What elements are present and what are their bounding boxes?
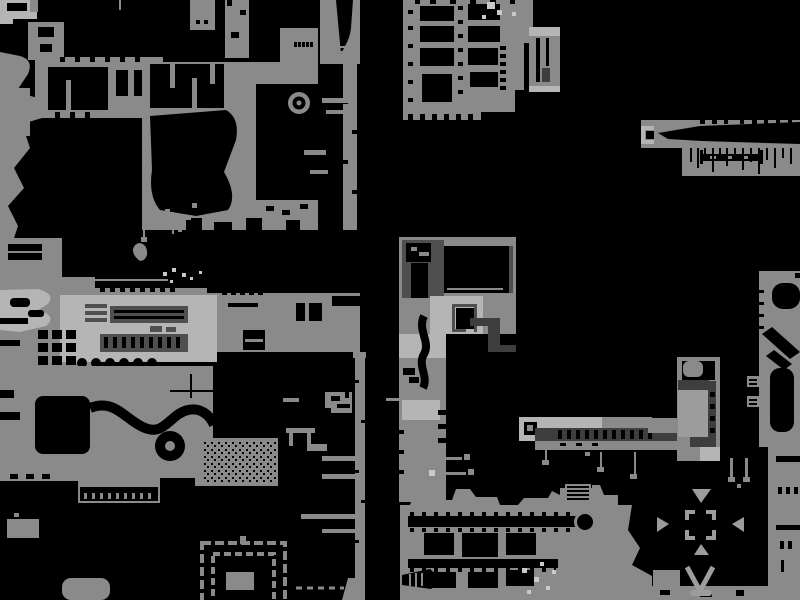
rubble-field bbox=[204, 441, 276, 484]
arrow-down bbox=[692, 489, 711, 503]
compass-brackets bbox=[687, 512, 714, 538]
right-edge-column bbox=[747, 271, 800, 600]
arrow-right bbox=[657, 517, 669, 532]
far-right-toothed-corridor bbox=[641, 117, 800, 176]
central-top-mass-with-ring bbox=[142, 0, 360, 232]
arrow-left bbox=[732, 517, 744, 532]
arrow-up bbox=[694, 544, 709, 555]
small-door-complex bbox=[529, 27, 560, 92]
top-left-corner-block bbox=[0, 0, 38, 24]
ring-marker bbox=[288, 92, 310, 114]
tower-structure bbox=[677, 357, 720, 461]
bottom-left-blocks bbox=[0, 513, 110, 600]
bottom-center-room-block bbox=[400, 470, 800, 600]
left-mass-with-room-frame bbox=[0, 0, 163, 280]
nested-structure bbox=[399, 237, 516, 502]
level-map[interactable] bbox=[0, 0, 800, 600]
map-viewport[interactable] bbox=[0, 0, 800, 600]
spiral-maze bbox=[202, 536, 285, 600]
spiral-rings bbox=[226, 572, 254, 590]
lower-left-mass-with-corridors bbox=[0, 366, 400, 503]
train-corridor bbox=[519, 417, 702, 479]
mid-vertical-strip bbox=[286, 352, 366, 600]
top-right-room-grid bbox=[403, 0, 533, 120]
